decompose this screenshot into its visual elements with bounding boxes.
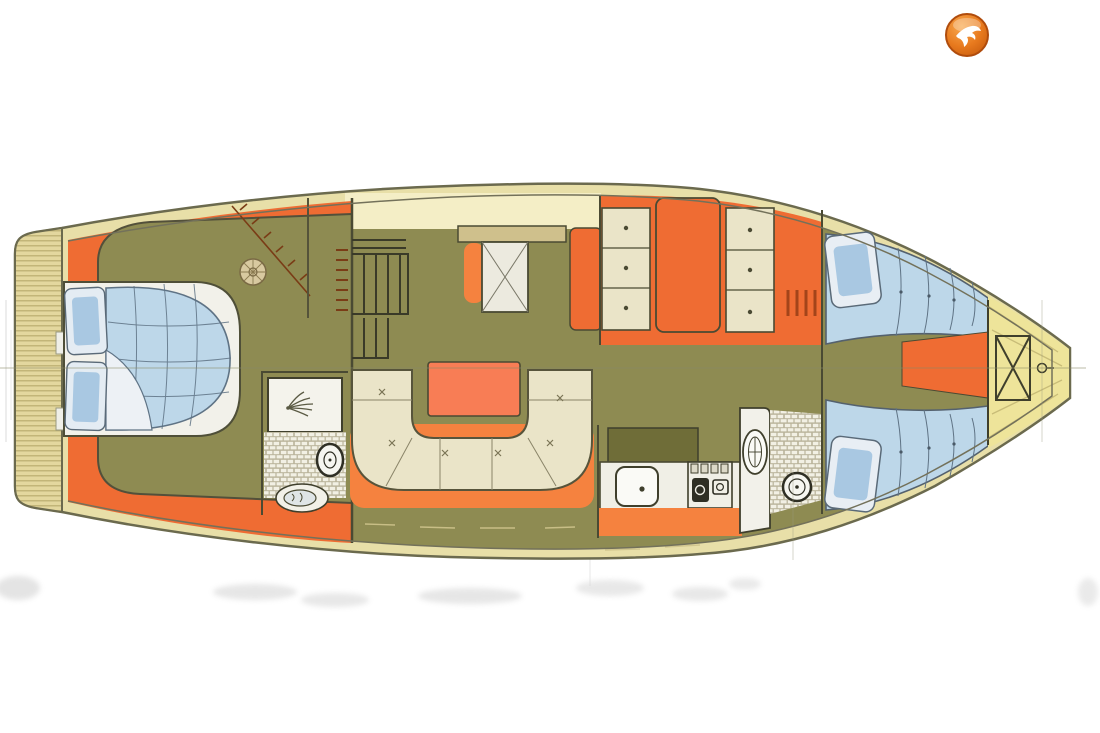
- aft-pillow-upper: [64, 287, 107, 355]
- stbd-berth-pillow: [824, 435, 882, 513]
- ladder-rungs: [336, 250, 348, 310]
- forward-toilet: [783, 473, 811, 501]
- wardrobe-drawers-b: [726, 208, 774, 332]
- aft-head: [262, 372, 348, 515]
- deck-plan-drawing: [0, 0, 1100, 733]
- hanging-locker-door: [656, 198, 720, 332]
- scan-smudges: [0, 576, 1098, 607]
- wardrobe-drawers-a: [602, 208, 650, 330]
- deck-vent-coil: [240, 259, 266, 285]
- salon-table: [428, 362, 520, 416]
- port-berth-pillow: [824, 231, 882, 309]
- forward-washbasin: [743, 430, 767, 474]
- aft-pillow-lower: [65, 361, 107, 430]
- brand-logo[interactable]: [946, 14, 988, 56]
- locker-cabinet: [570, 228, 602, 330]
- forepeak-infill: [902, 332, 988, 398]
- swim-platform: [15, 228, 62, 512]
- salon: [350, 362, 594, 508]
- cockpit-sole: [345, 193, 601, 229]
- galley-stove: [688, 462, 732, 508]
- galley-front: [598, 508, 742, 536]
- aft-washbasin: [276, 484, 328, 512]
- aft-double-berth: [64, 282, 240, 436]
- galley-sink: [616, 467, 658, 506]
- aft-toilet: [317, 444, 343, 476]
- scanned-page: [0, 0, 1100, 733]
- nav-shelf: [458, 226, 566, 242]
- nav-seat: [464, 243, 484, 303]
